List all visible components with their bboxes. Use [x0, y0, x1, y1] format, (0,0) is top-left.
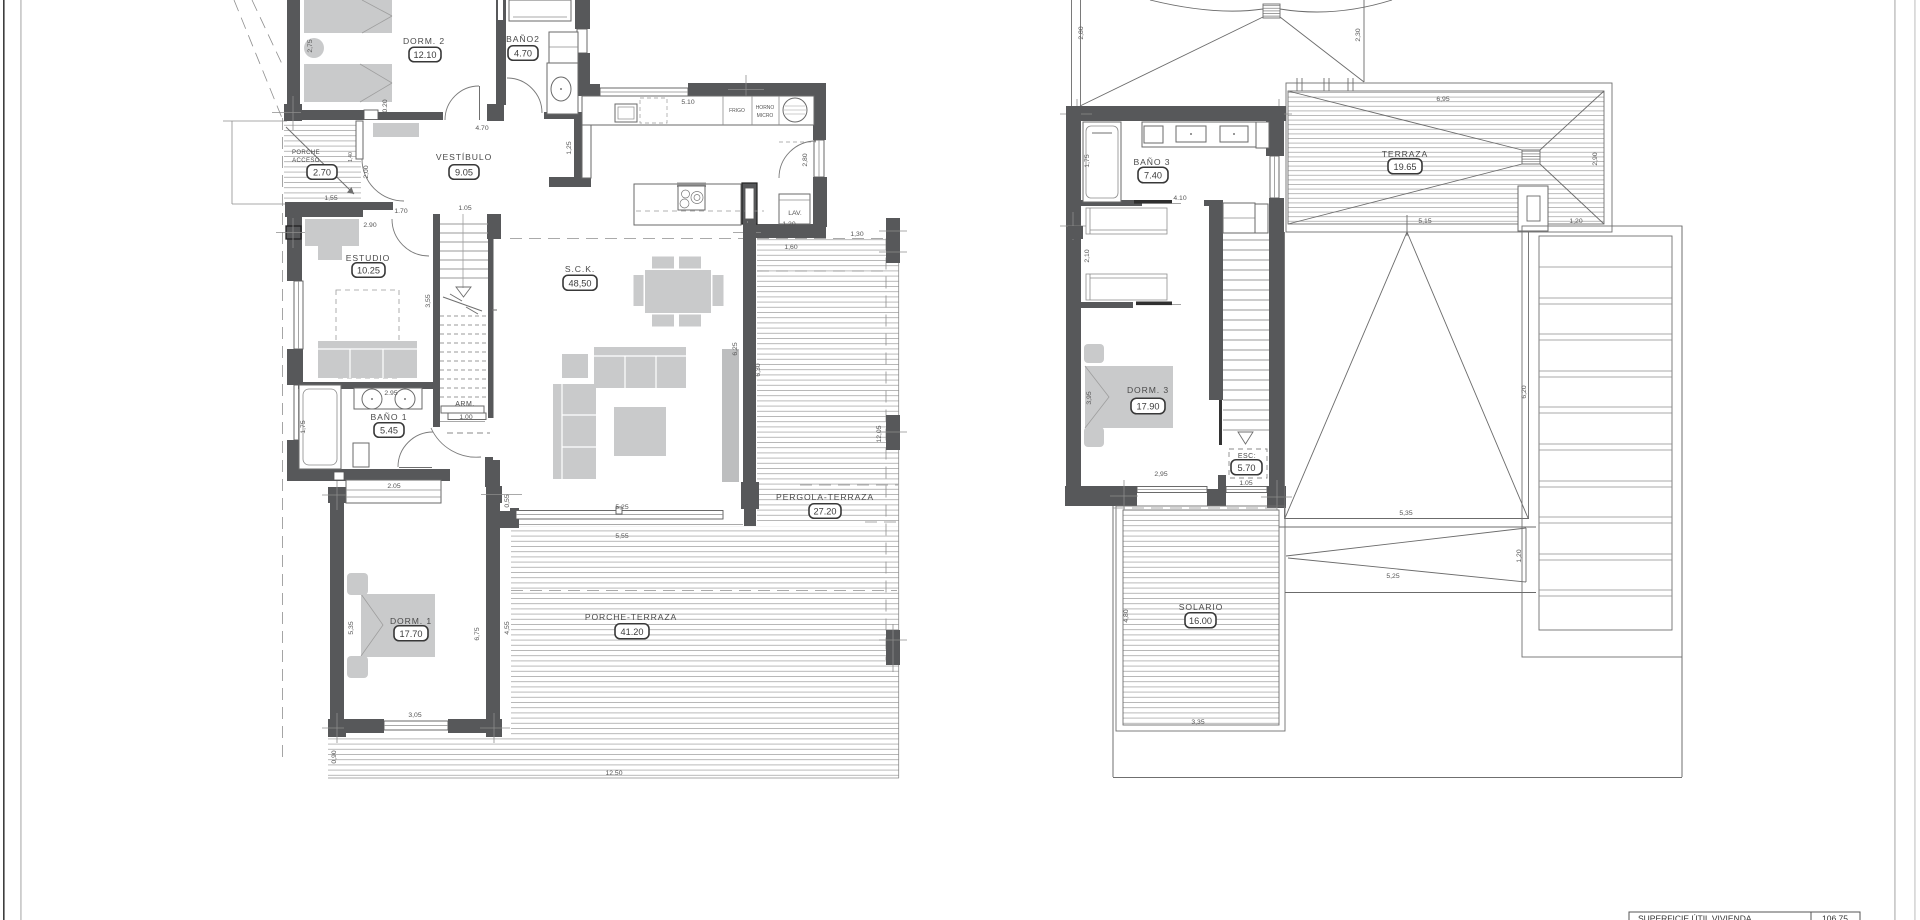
- svg-text:4,55: 4,55: [504, 621, 511, 634]
- svg-text:DORM. 2: DORM. 2: [403, 36, 445, 46]
- svg-text:9.05: 9.05: [455, 168, 473, 178]
- svg-text:1.70: 1.70: [394, 208, 407, 215]
- svg-text:6,95: 6,95: [1436, 96, 1449, 103]
- svg-text:5,55: 5,55: [615, 533, 628, 540]
- svg-text:5.70: 5.70: [1238, 463, 1256, 473]
- svg-text:1.05: 1.05: [458, 205, 471, 212]
- svg-text:ESTUDIO: ESTUDIO: [346, 253, 391, 263]
- svg-text:3,05: 3,05: [408, 712, 421, 719]
- svg-text:2,90: 2,90: [1592, 152, 1599, 165]
- svg-text:1,30: 1,30: [850, 231, 863, 238]
- svg-text:1,20: 1,20: [1569, 218, 1582, 225]
- svg-text:1,75: 1,75: [300, 420, 307, 433]
- svg-text:41.20: 41.20: [621, 627, 644, 637]
- svg-text:7.40: 7.40: [1144, 171, 1162, 181]
- svg-text:1,20: 1,20: [1516, 549, 1523, 562]
- svg-text:1,40: 1,40: [348, 152, 354, 162]
- svg-text:2.95: 2.95: [384, 390, 397, 397]
- svg-text:27.20: 27.20: [814, 507, 837, 517]
- svg-text:BAÑO2: BAÑO2: [506, 34, 540, 44]
- svg-text:HORNO: HORNO: [756, 105, 775, 111]
- svg-text:10.25: 10.25: [357, 266, 380, 276]
- svg-text:48,50: 48,50: [569, 278, 592, 288]
- svg-text:0,90: 0,90: [331, 750, 338, 763]
- svg-text:DORM. 3: DORM. 3: [1127, 385, 1169, 395]
- svg-text:S.C.K.: S.C.K.: [565, 264, 595, 274]
- svg-text:ARM.: ARM.: [455, 401, 475, 408]
- svg-text:3,95: 3,95: [1086, 391, 1093, 404]
- svg-text:1.20: 1.20: [782, 221, 795, 228]
- svg-text:1.00: 1.00: [459, 414, 472, 421]
- svg-text:2,10: 2,10: [1084, 249, 1091, 262]
- svg-text:12,05: 12,05: [876, 425, 883, 442]
- svg-text:4.70: 4.70: [475, 125, 488, 132]
- svg-text:2.90: 2.90: [363, 222, 376, 229]
- svg-text:2,95: 2,95: [1154, 471, 1167, 478]
- svg-text:5.45: 5.45: [380, 426, 398, 436]
- svg-text:2,00: 2,00: [363, 165, 370, 178]
- svg-text:1,25: 1,25: [566, 141, 573, 154]
- svg-text:DORM. 1: DORM. 1: [390, 616, 432, 626]
- svg-text:PORCHE: PORCHE: [292, 150, 320, 156]
- svg-text:TERRAZA: TERRAZA: [1382, 149, 1428, 159]
- svg-text:6,75: 6,75: [474, 627, 481, 640]
- svg-text:1,55: 1,55: [324, 195, 337, 202]
- svg-text:0,55: 0,55: [504, 494, 511, 507]
- svg-text:4.70: 4.70: [514, 49, 532, 59]
- svg-text:12.10: 12.10: [414, 50, 437, 60]
- svg-text:SOLARIO: SOLARIO: [1179, 602, 1224, 612]
- svg-text:2.70: 2.70: [313, 168, 331, 178]
- svg-text:3,55: 3,55: [425, 294, 432, 307]
- svg-text:LAV.: LAV.: [788, 210, 802, 217]
- svg-text:PORCHE-TERRAZA: PORCHE-TERRAZA: [585, 612, 677, 622]
- svg-text:PERGOLA-TERRAZA: PERGOLA-TERRAZA: [776, 492, 874, 502]
- svg-text:5,25: 5,25: [615, 504, 628, 511]
- svg-text:2,75: 2,75: [307, 39, 314, 52]
- svg-text:17.90: 17.90: [1137, 402, 1160, 412]
- svg-text:BAÑO 1: BAÑO 1: [371, 412, 408, 422]
- svg-text:4,80: 4,80: [1123, 609, 1130, 622]
- svg-text:5,15: 5,15: [1418, 218, 1431, 225]
- svg-text:2.05: 2.05: [387, 483, 400, 490]
- svg-text:5.10: 5.10: [681, 99, 694, 106]
- svg-text:5,35: 5,35: [1399, 510, 1412, 517]
- svg-text:0.20: 0.20: [382, 99, 389, 112]
- svg-text:16.00: 16.00: [1189, 616, 1212, 626]
- svg-text:106,75: 106,75: [1822, 914, 1848, 920]
- svg-text:FRIGO: FRIGO: [729, 108, 745, 114]
- svg-text:5,35: 5,35: [348, 621, 355, 634]
- svg-text:MICRO: MICRO: [757, 113, 774, 119]
- svg-text:19.65: 19.65: [1394, 162, 1417, 172]
- svg-text:3,35: 3,35: [1191, 719, 1204, 726]
- svg-text:12.50: 12.50: [605, 770, 622, 777]
- svg-text:4.10: 4.10: [1173, 195, 1186, 202]
- svg-text:2,80: 2,80: [1078, 26, 1085, 39]
- svg-text:1,60: 1,60: [784, 244, 797, 251]
- svg-text:VESTÍBULO: VESTÍBULO: [436, 152, 492, 162]
- svg-text:6,25: 6,25: [732, 342, 739, 355]
- svg-text:5,25: 5,25: [1386, 573, 1399, 580]
- svg-text:6,20: 6,20: [1521, 385, 1528, 398]
- svg-text:ACCESO: ACCESO: [292, 158, 320, 164]
- svg-text:6,30: 6,30: [755, 363, 762, 376]
- svg-text:SUPERFICIE ÚTIL VIVIENDA: SUPERFICIE ÚTIL VIVIENDA: [1638, 914, 1752, 920]
- svg-text:17.70: 17.70: [400, 629, 423, 639]
- svg-text:BAÑO 3: BAÑO 3: [1134, 157, 1171, 167]
- svg-text:2,30: 2,30: [1355, 28, 1362, 41]
- svg-text:1,75: 1,75: [1084, 154, 1091, 167]
- svg-text:1.05: 1.05: [1239, 480, 1252, 487]
- svg-text:2,80: 2,80: [802, 153, 809, 166]
